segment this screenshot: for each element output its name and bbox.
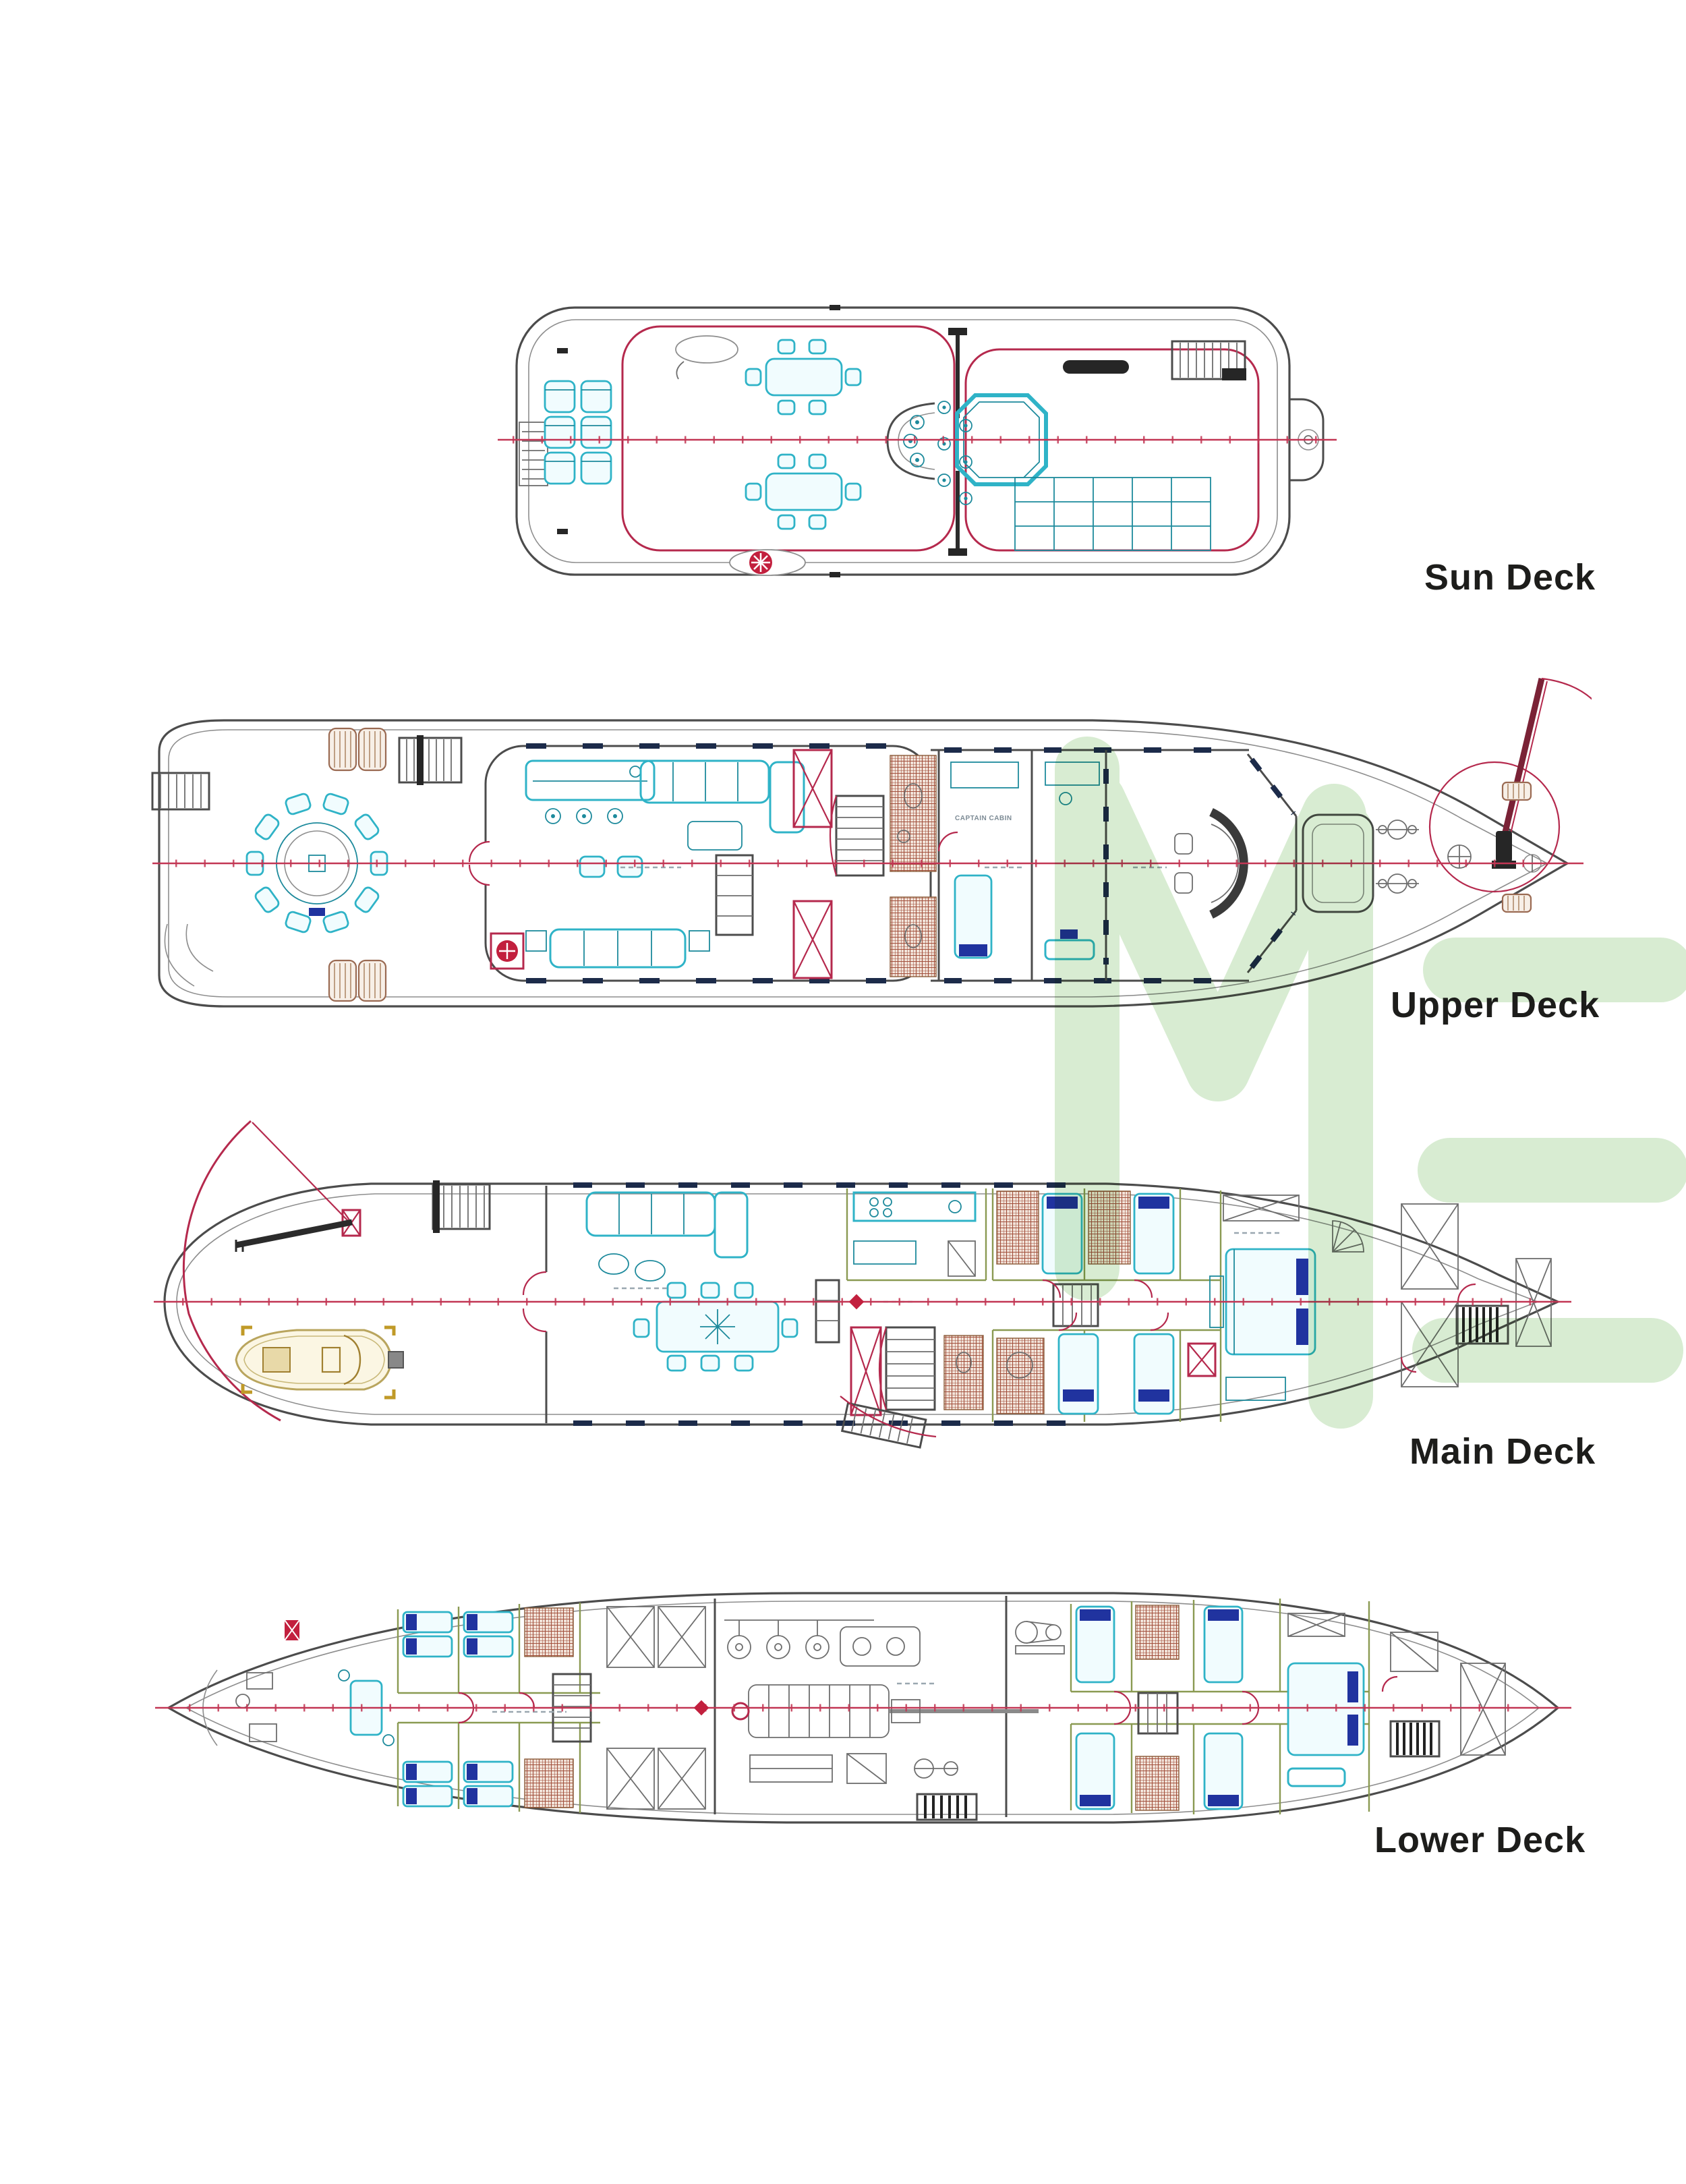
sun-deck-label: Sun Deck	[1424, 558, 1596, 597]
radar-arch	[1063, 360, 1129, 374]
main-deck-plan	[142, 1079, 1686, 1457]
sun-deck-plan	[492, 270, 1342, 587]
yacht-deck-plans-page: CAPTAIN CABIN	[0, 0, 1686, 2184]
upper-deck-label: Upper Deck	[1391, 986, 1600, 1025]
lower-deck-label: Lower Deck	[1374, 1821, 1586, 1860]
sun-hull	[517, 305, 1323, 577]
main-deck-label: Main Deck	[1409, 1433, 1596, 1471]
upper-deck-plan: CAPTAIN CABIN	[148, 661, 1592, 1012]
captain-cabin-label: CAPTAIN CABIN	[955, 815, 1012, 822]
umbrella-table	[730, 550, 805, 575]
